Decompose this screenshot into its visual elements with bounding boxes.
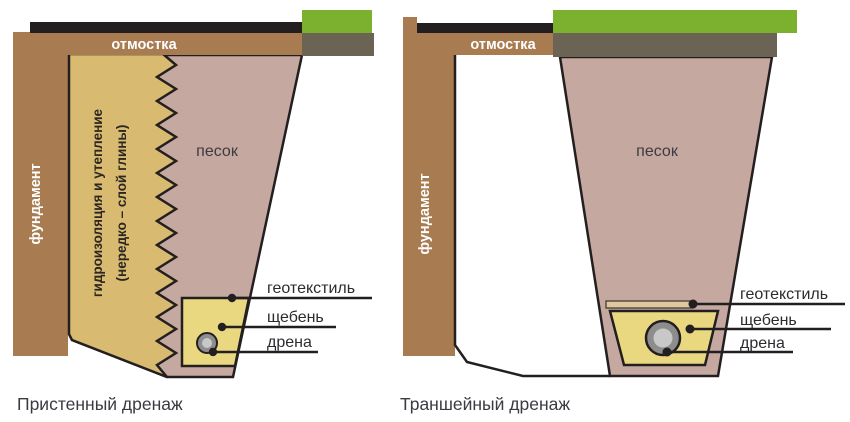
right-callout-dot-gravel: [686, 325, 695, 334]
left-panel: отмостка фундамент гидроизоляция и утепл…: [13, 10, 374, 414]
right-grass-block: [553, 10, 797, 33]
left-geotextile-label: геотекстиль: [267, 280, 355, 297]
left-sand-label: песок: [196, 143, 239, 160]
drainage-diagram: отмостка фундамент гидроизоляция и утепл…: [0, 0, 850, 422]
left-callout-dot-gravel: [218, 323, 226, 331]
right-geotextile-stripe: [606, 301, 693, 308]
left-grass-block: [302, 10, 372, 33]
right-callout-dot-geotextile: [689, 300, 698, 309]
left-insulation-label-line2: (нередко – слой глины): [114, 125, 129, 282]
left-gravel-label: щебень: [267, 309, 324, 326]
right-blind-area-label: отмостка: [470, 37, 536, 53]
left-membrane-bar: [30, 22, 302, 33]
left-drain-label: дрена: [267, 334, 312, 351]
right-topsoil-block: [553, 33, 777, 57]
right-drain-pipe-inner: [654, 329, 673, 348]
right-foundation-label: фундамент: [417, 173, 433, 254]
left-callout-dot-geotextile: [228, 294, 236, 302]
right-gravel-label: щебень: [740, 312, 797, 329]
left-callout-dot-drain: [209, 348, 217, 356]
right-sand-label: песок: [636, 143, 679, 160]
left-drain-pipe-inner: [202, 338, 212, 348]
left-caption: Пристенный дренаж: [17, 394, 183, 414]
right-panel: отмостка фундамент песок геотекстиль щеб…: [400, 10, 845, 414]
left-insulation-label-line1: гидроизоляция и утепление: [90, 108, 105, 297]
right-drain-label: дрена: [740, 335, 785, 352]
right-membrane-bar: [417, 23, 553, 33]
left-foundation-label: фундамент: [28, 163, 44, 244]
left-blind-area-label: отмостка: [111, 37, 177, 53]
right-callout-dot-drain: [663, 348, 672, 357]
right-geotextile-label: геотекстиль: [740, 286, 828, 303]
left-topsoil-block: [302, 33, 374, 56]
left-gravel-box: [182, 298, 249, 366]
right-caption: Траншейный дренаж: [400, 394, 570, 414]
